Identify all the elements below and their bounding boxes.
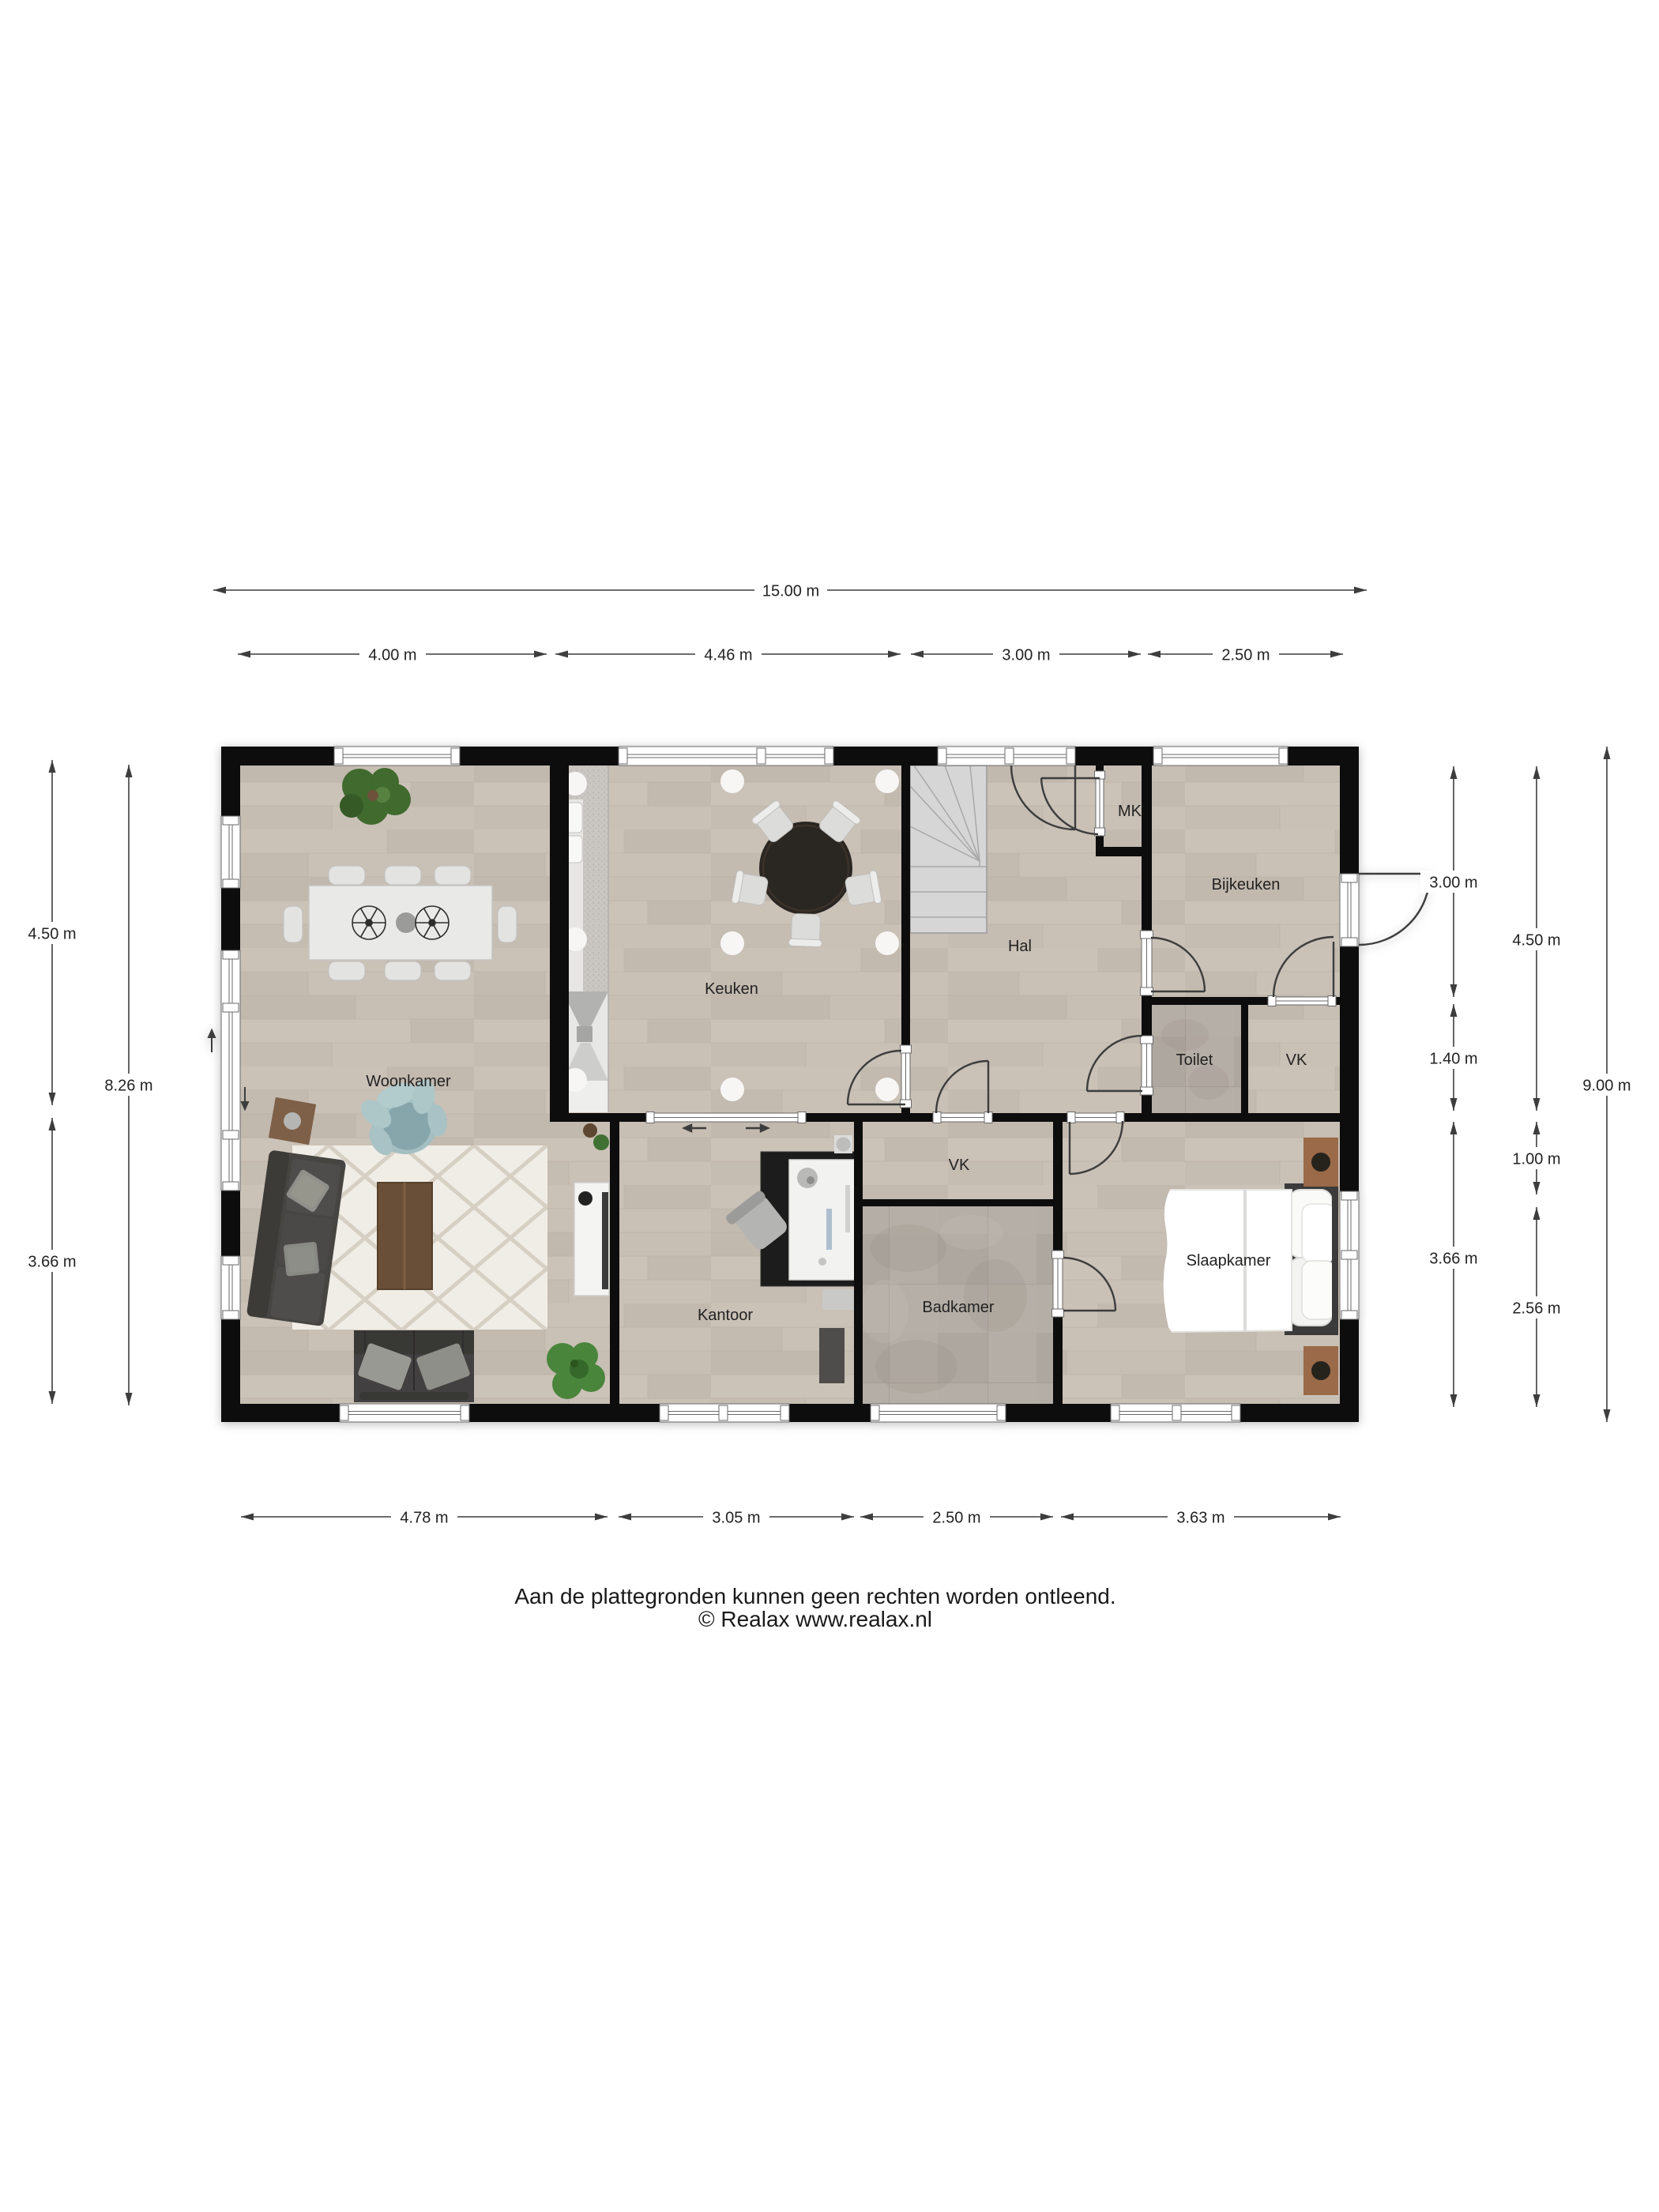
svg-text:Keuken: Keuken (705, 980, 758, 998)
svg-text:Kantoor: Kantoor (698, 1307, 753, 1324)
svg-text:1.00 m: 1.00 m (1512, 1151, 1560, 1168)
svg-text:3.66 m: 3.66 m (28, 1254, 76, 1271)
svg-text:8.26 m: 8.26 m (104, 1078, 152, 1095)
svg-text:2.56 m: 2.56 m (1512, 1300, 1560, 1318)
svg-text:2.50 m: 2.50 m (932, 1510, 980, 1527)
svg-text:3.00 m: 3.00 m (1002, 647, 1050, 664)
svg-text:Slaapkamer: Slaapkamer (1187, 1252, 1271, 1270)
svg-text:4.50 m: 4.50 m (28, 926, 76, 943)
svg-text:3.63 m: 3.63 m (1176, 1510, 1224, 1527)
svg-text:Toilet: Toilet (1176, 1051, 1213, 1069)
svg-text:Bijkeuken: Bijkeuken (1212, 876, 1281, 893)
svg-text:VK: VK (1286, 1051, 1307, 1069)
svg-text:15.00 m: 15.00 m (762, 583, 819, 600)
svg-text:3.66 m: 3.66 m (1429, 1251, 1477, 1268)
svg-text:4.78 m: 4.78 m (400, 1510, 448, 1527)
svg-text:Aan de plattegronden kunnen ge: Aan de plattegronden kunnen geen rechten… (514, 1584, 1115, 1608)
svg-text:1.40 m: 1.40 m (1429, 1051, 1477, 1068)
svg-text:Hal: Hal (1008, 938, 1032, 955)
svg-text:4.46 m: 4.46 m (704, 647, 752, 664)
svg-text:2.50 m: 2.50 m (1221, 647, 1270, 664)
svg-text:9.00 m: 9.00 m (1582, 1078, 1631, 1095)
svg-text:VK: VK (949, 1157, 970, 1174)
svg-text:© Realax www.realax.nl: © Realax www.realax.nl (698, 1607, 932, 1631)
svg-text:Woonkamer: Woonkamer (366, 1073, 451, 1090)
svg-text:4.00 m: 4.00 m (368, 647, 416, 664)
svg-text:4.50 m: 4.50 m (1512, 932, 1560, 950)
svg-text:Badkamer: Badkamer (922, 1299, 994, 1316)
svg-text:MK: MK (1118, 803, 1142, 820)
svg-text:3.00 m: 3.00 m (1429, 875, 1477, 892)
svg-text:3.05 m: 3.05 m (712, 1510, 760, 1527)
